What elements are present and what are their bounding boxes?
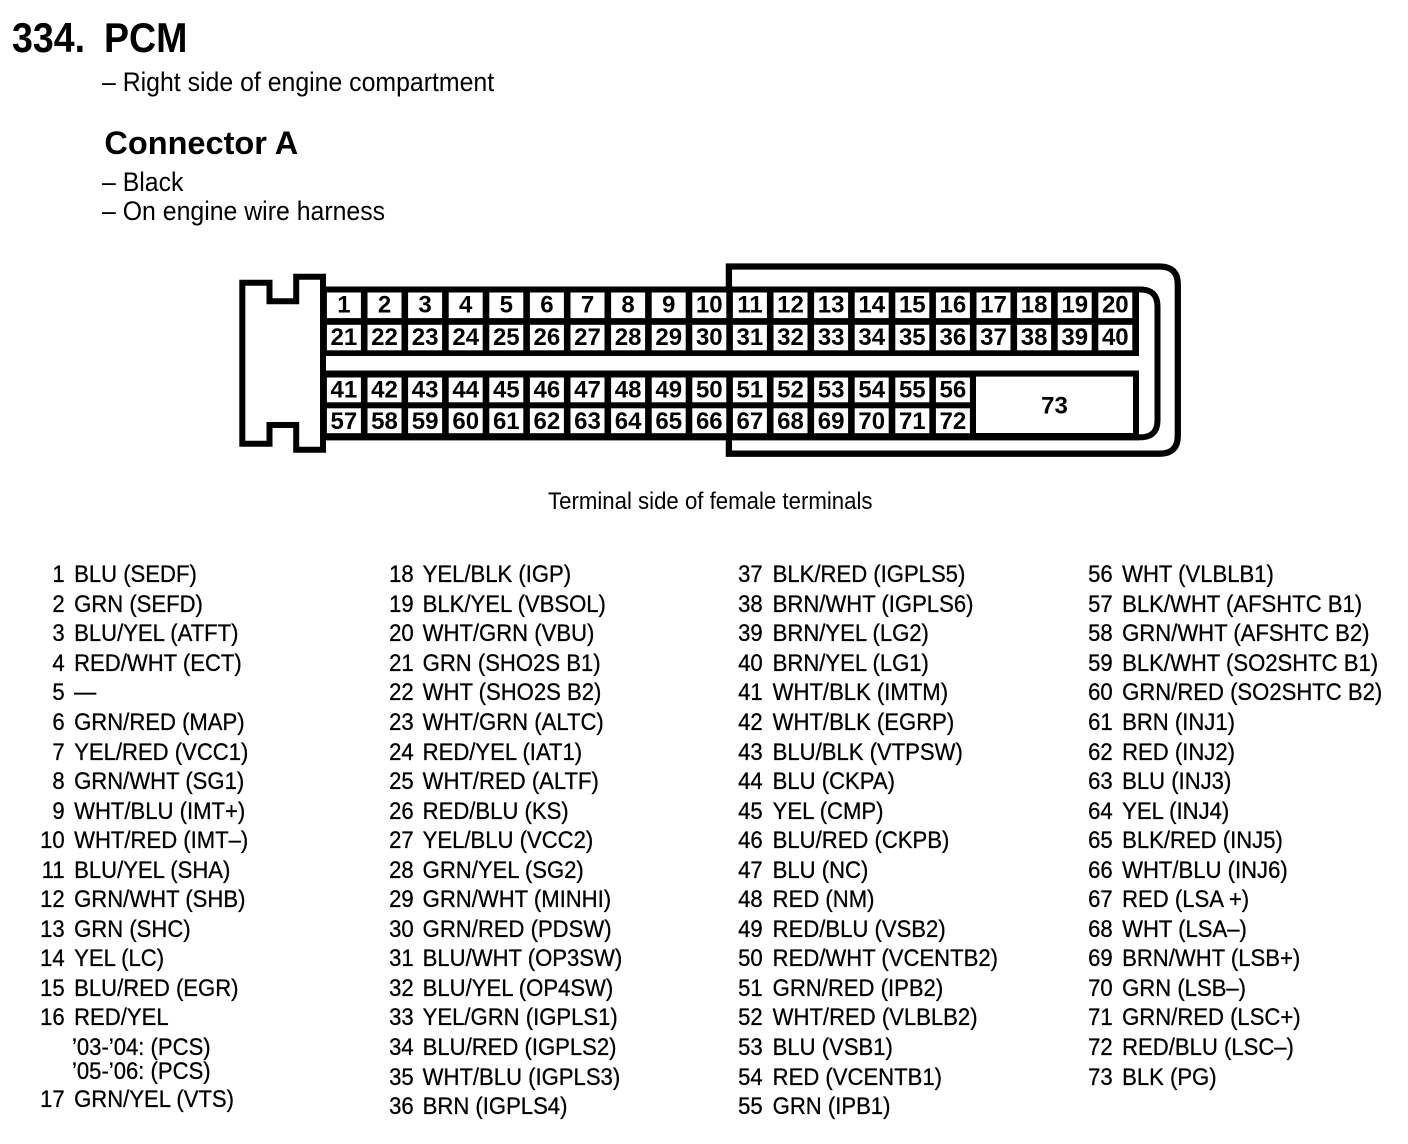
svg-text:72: 72 — [940, 408, 967, 435]
svg-text:35: 35 — [899, 324, 926, 351]
svg-text:19: 19 — [1061, 292, 1088, 319]
svg-text:4: 4 — [459, 292, 473, 319]
svg-text:58: 58 — [371, 408, 398, 435]
svg-text:32: 32 — [777, 324, 804, 351]
svg-text:49: 49 — [655, 377, 682, 404]
svg-text:17: 17 — [980, 292, 1007, 319]
svg-text:46: 46 — [534, 377, 561, 404]
svg-text:73: 73 — [1041, 392, 1068, 419]
svg-text:61: 61 — [493, 408, 520, 435]
svg-text:37: 37 — [980, 324, 1007, 351]
svg-text:29: 29 — [655, 324, 682, 351]
svg-text:43: 43 — [412, 377, 439, 404]
svg-text:15: 15 — [899, 292, 926, 319]
svg-text:50: 50 — [696, 377, 723, 404]
svg-text:24: 24 — [452, 324, 479, 351]
svg-text:42: 42 — [371, 377, 398, 404]
svg-text:67: 67 — [737, 408, 764, 435]
svg-text:9: 9 — [662, 292, 675, 319]
svg-text:41: 41 — [331, 377, 358, 404]
svg-text:62: 62 — [534, 408, 561, 435]
svg-text:13: 13 — [818, 292, 845, 319]
svg-text:59: 59 — [412, 408, 439, 435]
svg-text:51: 51 — [737, 377, 764, 404]
svg-text:65: 65 — [655, 408, 682, 435]
svg-text:10: 10 — [696, 292, 723, 319]
svg-text:56: 56 — [940, 377, 967, 404]
svg-text:3: 3 — [418, 292, 431, 319]
svg-text:52: 52 — [777, 377, 804, 404]
svg-text:22: 22 — [371, 324, 398, 351]
svg-text:45: 45 — [493, 377, 520, 404]
svg-text:70: 70 — [858, 408, 885, 435]
svg-text:66: 66 — [696, 408, 723, 435]
svg-text:20: 20 — [1102, 292, 1129, 319]
svg-text:30: 30 — [696, 324, 723, 351]
svg-text:26: 26 — [534, 324, 561, 351]
svg-text:47: 47 — [574, 377, 601, 404]
svg-text:11: 11 — [737, 292, 762, 319]
svg-text:53: 53 — [818, 377, 845, 404]
svg-text:33: 33 — [818, 324, 845, 351]
svg-text:39: 39 — [1061, 324, 1088, 351]
svg-text:8: 8 — [621, 292, 634, 319]
svg-text:44: 44 — [452, 377, 479, 404]
svg-text:55: 55 — [899, 377, 926, 404]
svg-text:57: 57 — [331, 408, 358, 435]
svg-text:2: 2 — [378, 292, 391, 319]
svg-text:16: 16 — [940, 292, 967, 319]
svg-text:71: 71 — [899, 408, 926, 435]
svg-text:36: 36 — [940, 324, 967, 351]
svg-text:31: 31 — [737, 324, 764, 351]
svg-text:5: 5 — [500, 292, 513, 319]
svg-text:28: 28 — [615, 324, 642, 351]
svg-text:68: 68 — [777, 408, 804, 435]
svg-text:7: 7 — [581, 292, 594, 319]
svg-text:1: 1 — [337, 292, 350, 319]
svg-text:60: 60 — [452, 408, 479, 435]
svg-text:54: 54 — [858, 377, 885, 404]
svg-text:64: 64 — [615, 408, 642, 435]
svg-text:34: 34 — [858, 324, 885, 351]
svg-text:23: 23 — [412, 324, 439, 351]
svg-text:69: 69 — [818, 408, 845, 435]
svg-text:25: 25 — [493, 324, 520, 351]
svg-text:21: 21 — [331, 324, 358, 351]
svg-text:63: 63 — [574, 408, 601, 435]
svg-text:27: 27 — [574, 324, 601, 351]
svg-text:14: 14 — [858, 292, 885, 319]
svg-text:48: 48 — [615, 377, 642, 404]
svg-text:40: 40 — [1102, 324, 1129, 351]
svg-text:18: 18 — [1021, 292, 1048, 319]
svg-text:38: 38 — [1021, 324, 1048, 351]
svg-text:12: 12 — [777, 292, 804, 319]
svg-text:6: 6 — [540, 292, 553, 319]
